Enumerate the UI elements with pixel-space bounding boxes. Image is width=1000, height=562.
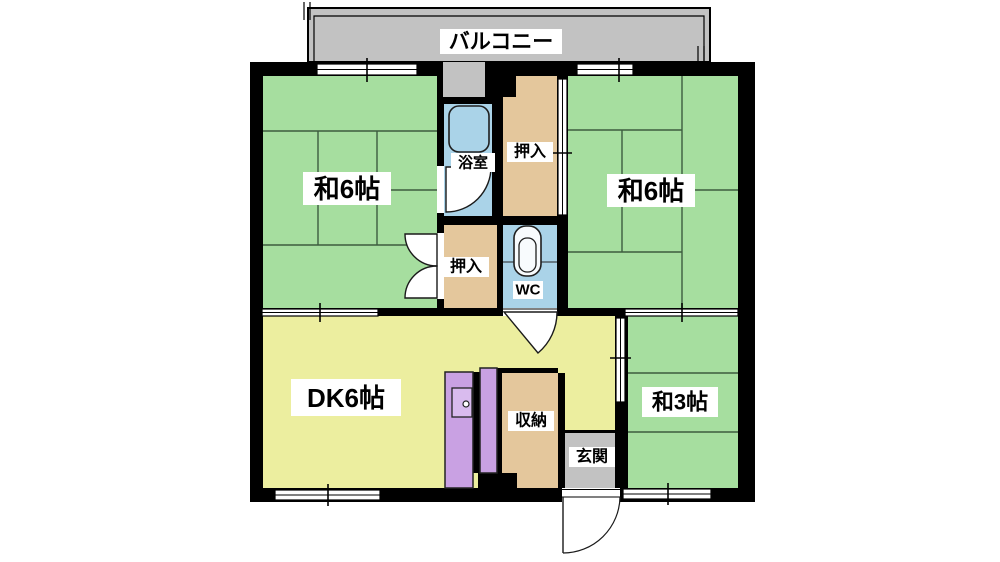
wall-core-center-upper — [492, 62, 503, 225]
closet-lower-label-text: 押入 — [450, 257, 482, 276]
wall-entrance-step — [562, 430, 618, 433]
bathroom-label-text: 浴室 — [458, 154, 488, 172]
washitsu-left-label: 和6帖 — [303, 172, 391, 205]
wall-core-center-lower — [497, 225, 503, 316]
wall-niche-bottom — [443, 97, 492, 104]
kitchen-counter — [445, 368, 497, 488]
wall-closet-notch — [503, 76, 516, 97]
kitchen-counter-side — [480, 368, 497, 473]
kitchen-sink-icon — [452, 388, 472, 417]
washitsu-right-label: 和6帖 — [607, 174, 695, 207]
wall-kitchen-step — [478, 473, 517, 489]
balcony-niche — [443, 62, 485, 97]
storage-label-text: 収納 — [515, 411, 547, 430]
door-entrance-swing — [563, 497, 620, 553]
entrance-label-text: 玄関 — [576, 447, 608, 466]
washitsu-left-label-text: 和6帖 — [314, 174, 380, 204]
door-closet-jamb — [437, 233, 444, 299]
entrance-label: 玄関 — [569, 447, 615, 468]
bathroom-label: 浴室 — [451, 153, 495, 172]
washitsu-small-label-text: 和3帖 — [652, 390, 708, 415]
wall-right — [738, 62, 755, 502]
dk-label-text: DK6帖 — [307, 383, 385, 413]
closet-upper-label-text: 押入 — [514, 142, 546, 161]
washitsu-small-label: 和3帖 — [642, 387, 718, 417]
wall-left — [250, 62, 263, 502]
washitsu-right-label-text: 和6帖 — [618, 176, 684, 206]
door-entrance — [562, 488, 620, 553]
door-bathroom-jamb — [437, 166, 444, 213]
closet-upper-label: 押入 — [507, 142, 553, 163]
floorplan-canvas: バルコニー 和6帖 和6帖 浴室 押入 押入 WC DK6帖 — [0, 0, 1000, 562]
wall-core-horizontal — [437, 216, 568, 225]
wall-storage-top — [497, 368, 558, 373]
floorplan-drawing: バルコニー 和6帖 和6帖 浴室 押入 押入 WC DK6帖 — [0, 0, 1000, 562]
door-entrance-opening — [562, 488, 620, 502]
wall-kitchen-divider — [473, 372, 480, 473]
balcony-label: バルコニー — [440, 29, 562, 54]
wc-label: WC — [513, 281, 543, 299]
dk-label: DK6帖 — [291, 379, 401, 416]
wc-label-text: WC — [516, 282, 541, 299]
closet-lower-label: 押入 — [443, 257, 489, 278]
balcony-label-text: バルコニー — [449, 31, 554, 54]
storage-label: 収納 — [508, 411, 554, 432]
